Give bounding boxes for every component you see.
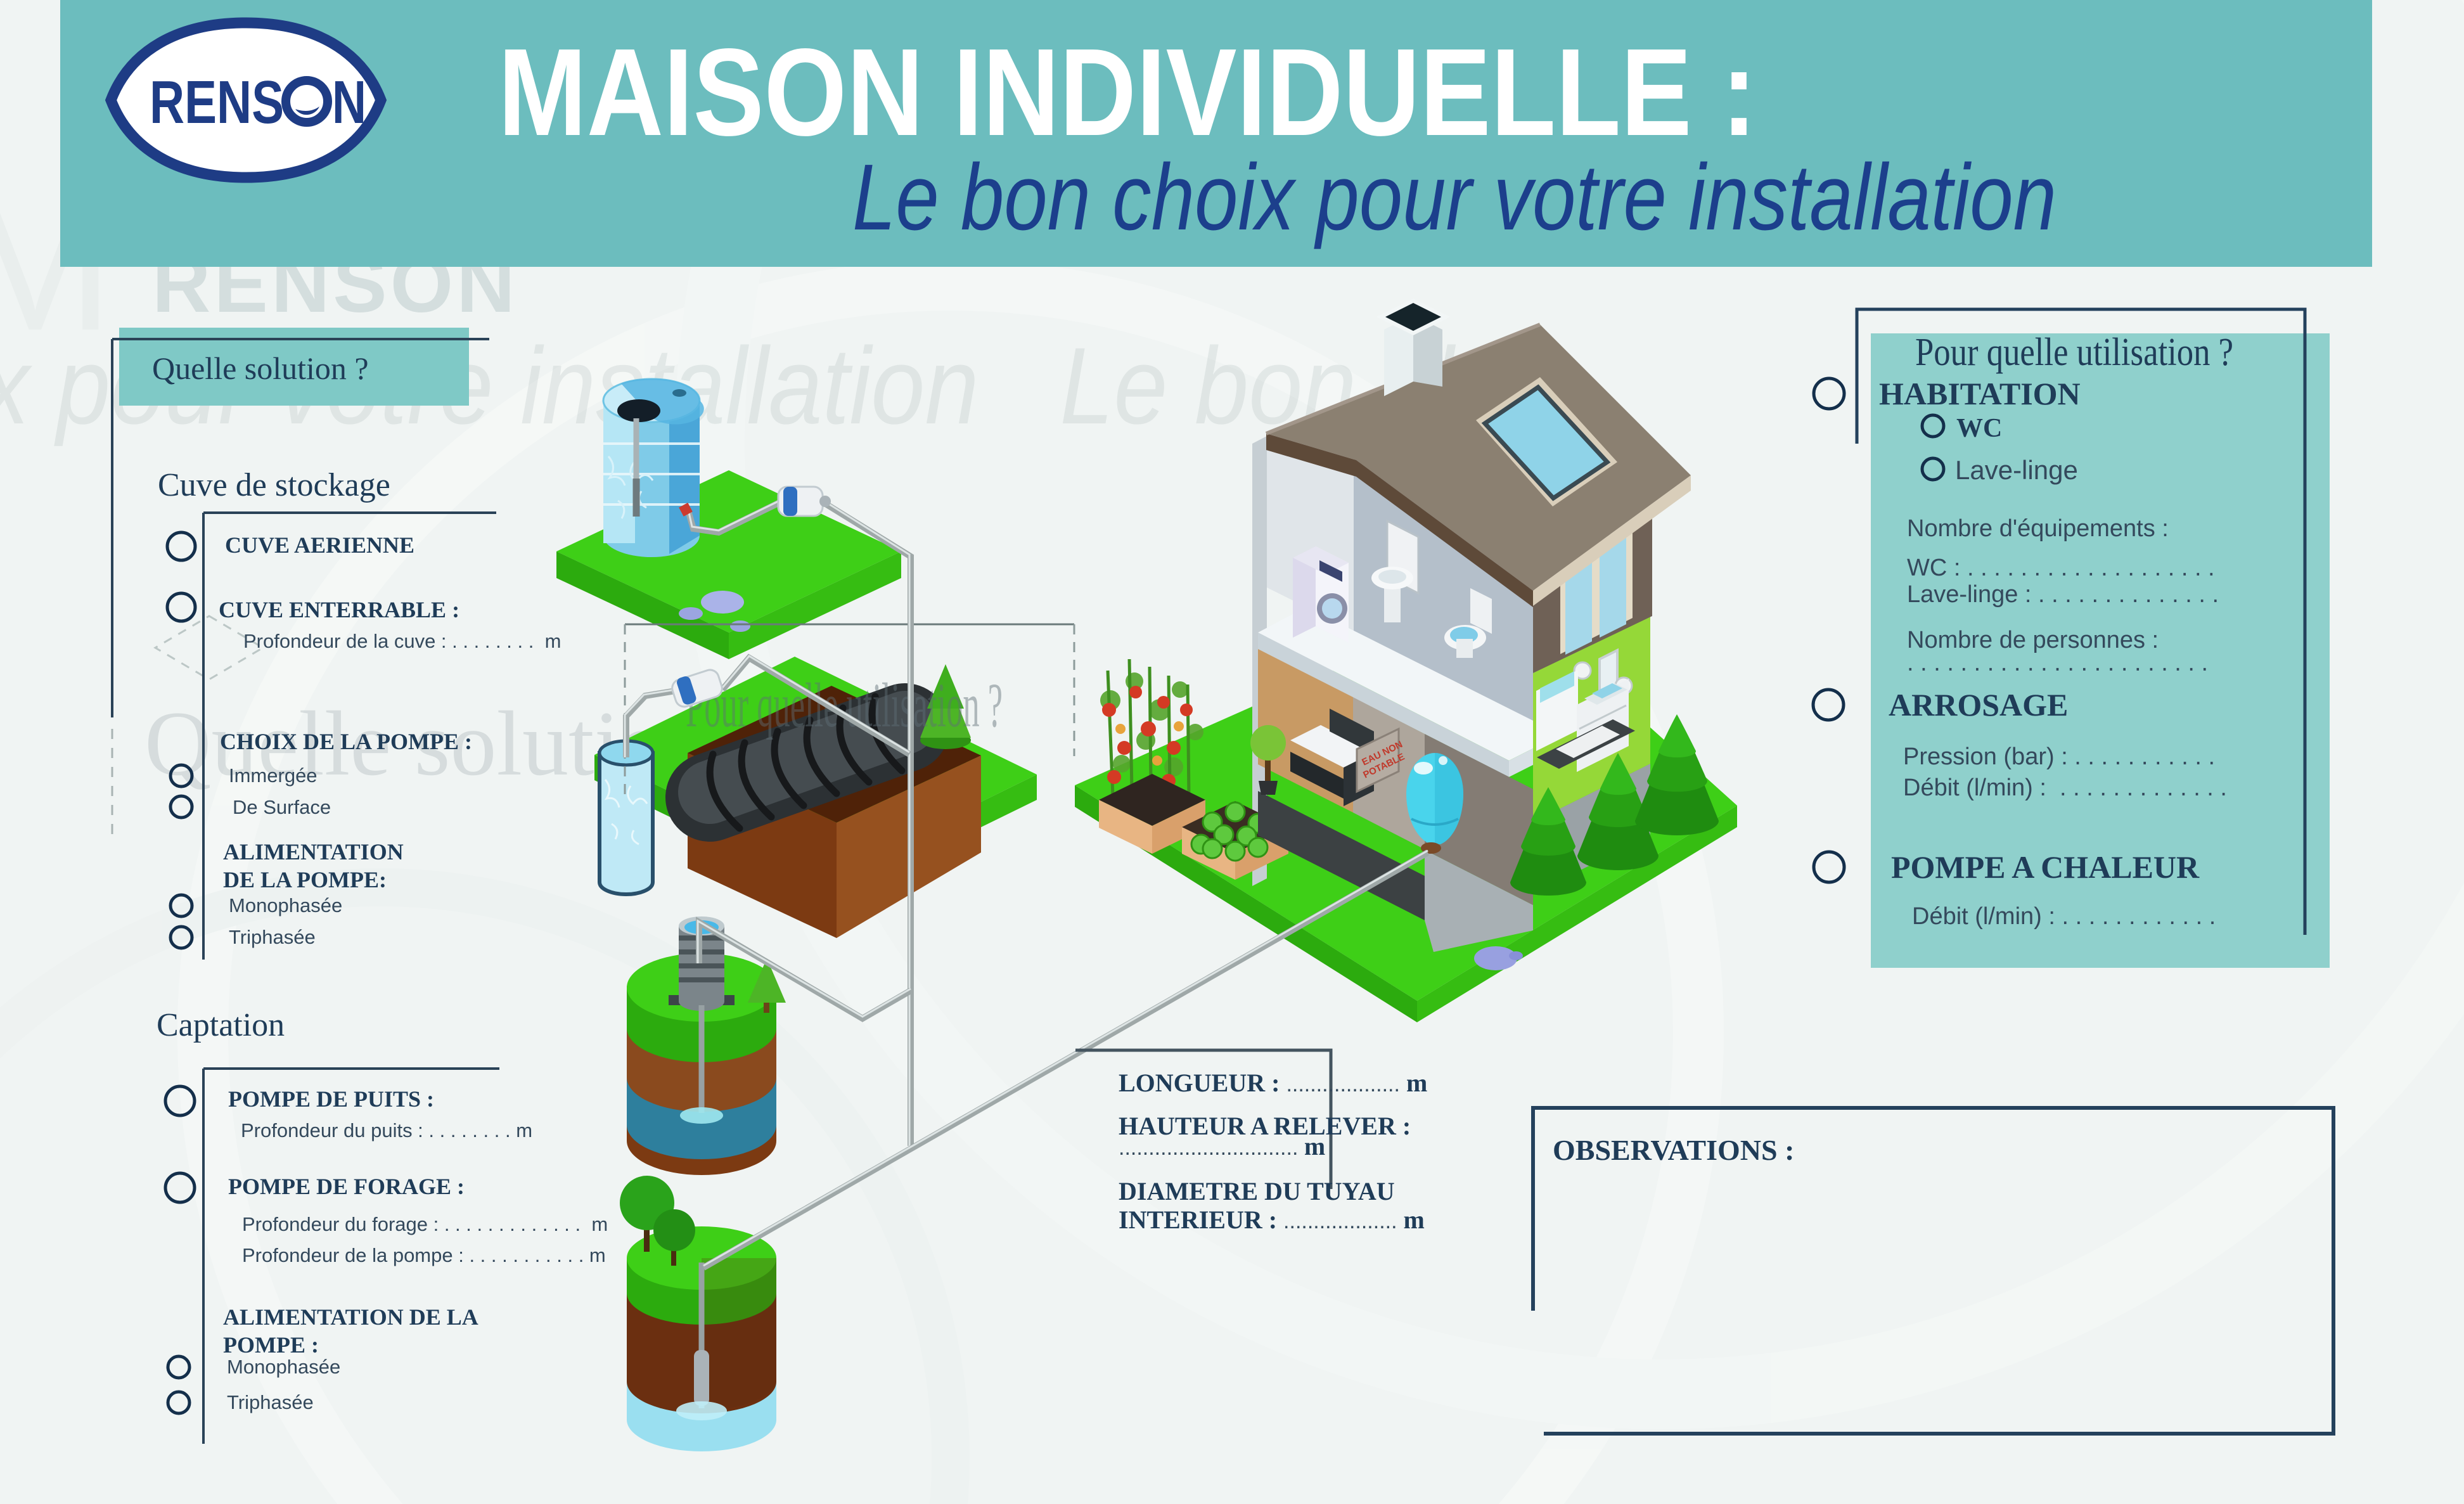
svg-text:WC: WC	[1956, 414, 2002, 443]
svg-text:CHOIX DE LA POMPE :: CHOIX DE LA POMPE :	[220, 729, 472, 754]
svg-text:ARROSAGE: ARROSAGE	[1889, 687, 2068, 723]
svg-text:Triphasée: Triphasée	[227, 1391, 314, 1413]
svg-text:Profondeur du forage : . . . .: Profondeur du forage : . . . . . . . . .…	[242, 1213, 608, 1235]
svg-text:Lave-linge : . . . . . . . . .: Lave-linge : . . . . . . . . . . . . . .	[1907, 581, 2219, 608]
svg-text:OBSERVATIONS :: OBSERVATIONS :	[1553, 1134, 1794, 1166]
svg-text:RENS: RENS	[150, 68, 284, 136]
svg-text:POMPE DE FORAGE :: POMPE DE FORAGE :	[228, 1174, 465, 1199]
svg-text:N: N	[332, 68, 366, 136]
svg-text:DIAMETRE DU TUYAU: DIAMETRE DU TUYAU	[1119, 1177, 1395, 1205]
svg-text:Pour quelle utilisation ?: Pour quelle utilisation ?	[1915, 331, 2233, 374]
svg-text:MAISON INDIVIDUELLE :: MAISON INDIVIDUELLE :	[498, 23, 1757, 162]
svg-text:. . . . . . . . . . . . . . .: . . . . . . . . . . . . . . . . . . . . …	[1907, 650, 2208, 676]
svg-text:WC : . . . . . . . . . . . . .: WC : . . . . . . . . . . . . . . . . . .…	[1907, 555, 2215, 581]
svg-text:POMPE A CHALEUR: POMPE A CHALEUR	[1891, 849, 2200, 885]
svg-text:Monophasée: Monophasée	[227, 1356, 340, 1378]
svg-text:DE LA POMPE:: DE LA POMPE:	[223, 867, 387, 892]
svg-text:Triphasée: Triphasée	[229, 926, 316, 948]
svg-text:De Surface: De Surface	[233, 796, 331, 818]
svg-text:Cuve de stockage: Cuve de stockage	[158, 467, 390, 503]
svg-text:Monophasée: Monophasée	[229, 894, 342, 916]
svg-text:POMPE DE PUITS :: POMPE DE PUITS :	[228, 1086, 434, 1112]
svg-text:Lave-linge: Lave-linge	[1955, 455, 2078, 485]
svg-text:Le bon choix pour votre instal: Le bon choix pour votre installation	[852, 145, 2057, 250]
svg-text:Profondeur de la cuve : . . .: Profondeur de la cuve : . . . . . . . . …	[243, 630, 561, 652]
svg-text:Profondeur de la pompe : . . .: Profondeur de la pompe : . . . . . . . .…	[242, 1244, 606, 1266]
svg-text:ALIMENTATION DE LA: ALIMENTATION DE LA	[223, 1304, 478, 1330]
svg-text:LONGUEUR : ...................: LONGUEUR : ................... m	[1119, 1069, 1427, 1097]
svg-text:CUVE AERIENNE: CUVE AERIENNE	[225, 532, 414, 558]
svg-text:Immergée: Immergée	[229, 764, 318, 787]
svg-text:Nombre d'équipements :: Nombre d'équipements :	[1907, 515, 2169, 542]
svg-text:ALIMENTATION: ALIMENTATION	[223, 839, 404, 864]
svg-text:Profondeur du puits : . . . .: Profondeur du puits : . . . . . . . . m	[241, 1119, 532, 1141]
svg-text:Quelle solution ?: Quelle solution ?	[152, 350, 369, 386]
svg-text:Débit (l/min) : . . . . . . .: Débit (l/min) : . . . . . . . . . . . . …	[1903, 774, 2227, 801]
svg-text:Pression (bar) : . . . . . . .: Pression (bar) : . . . . . . . . . . .	[1903, 743, 2215, 770]
svg-text:Captation: Captation	[157, 1007, 285, 1043]
svg-text:..............................: .............................. m	[1119, 1132, 1325, 1160]
svg-text:INTERIEUR : ..................: INTERIEUR : ................... m	[1119, 1205, 1425, 1234]
svg-text:Débit (l/min) : . . . . . . .: Débit (l/min) : . . . . . . . . . . . .	[1912, 903, 2216, 930]
svg-text:POMPE :: POMPE :	[223, 1332, 319, 1358]
svg-text:CUVE ENTERRABLE :: CUVE ENTERRABLE :	[219, 597, 459, 622]
svg-text:HABITATION: HABITATION	[1879, 376, 2081, 411]
